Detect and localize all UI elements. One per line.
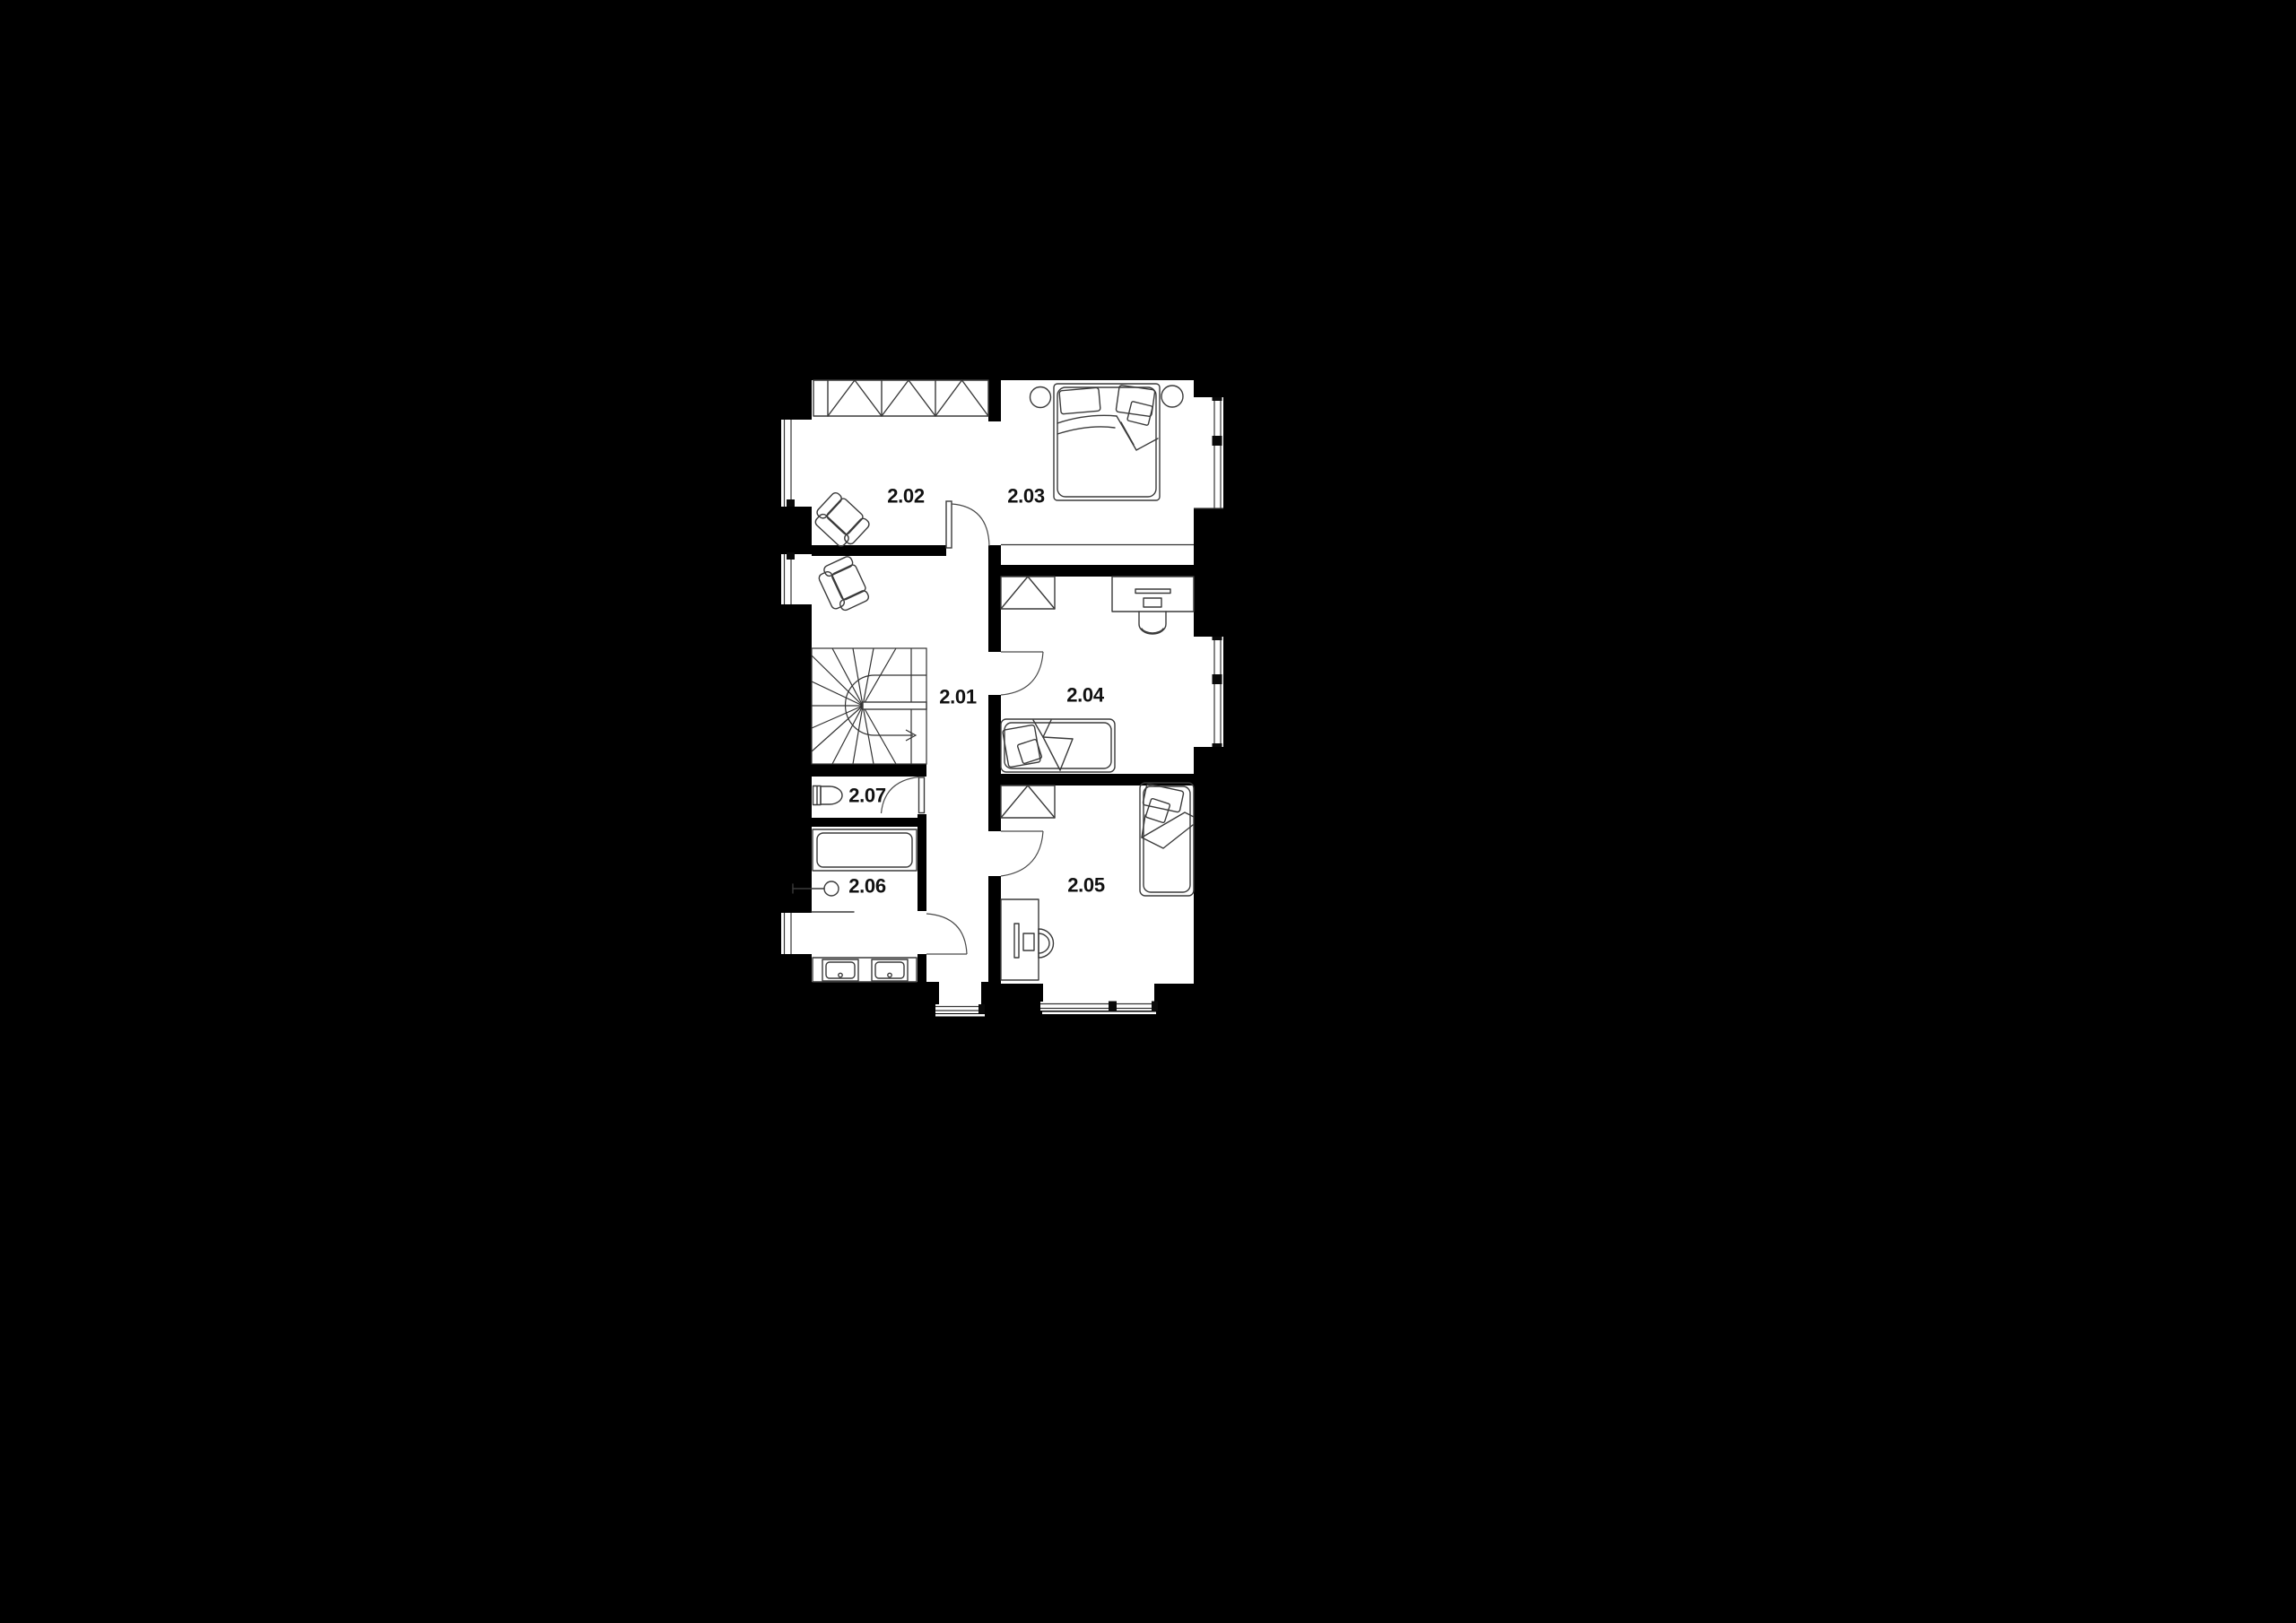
room-label-2-03: 2.03	[1007, 485, 1045, 508]
wall	[988, 876, 1001, 989]
wall	[787, 764, 926, 777]
room-label-2-02: 2.02	[887, 485, 925, 508]
wall	[988, 695, 1001, 831]
wall	[988, 372, 1001, 421]
room-2-04-floor	[1001, 577, 1194, 774]
room-label-2-01: 2.01	[939, 686, 977, 708]
wall	[988, 545, 1001, 556]
window-icon	[781, 552, 812, 604]
room-label-2-06: 2.06	[848, 875, 886, 898]
window-icon	[781, 913, 812, 954]
window-icon	[1040, 982, 1158, 1014]
window-icon	[1194, 397, 1223, 508]
room-label-2-05: 2.05	[1067, 874, 1105, 897]
wall	[988, 565, 1206, 577]
wall	[988, 774, 1206, 785]
wall	[787, 818, 926, 827]
wall	[918, 814, 926, 818]
passage-floor	[988, 421, 1001, 545]
room-2-03-floor	[1001, 380, 1194, 565]
stair-newel	[863, 702, 926, 709]
wall	[918, 954, 926, 984]
room-label-2-04: 2.04	[1066, 684, 1105, 707]
floor-plan: 2.01 2.02 2.03 2.04 2.05 2.06 2.07	[0, 0, 2296, 1623]
room-2-02-floor	[812, 380, 988, 545]
window-icon	[1194, 637, 1223, 747]
wall	[918, 827, 926, 911]
french-door-icon	[935, 979, 985, 1017]
window-icon	[781, 420, 812, 507]
room-label-2-07: 2.07	[848, 785, 886, 807]
